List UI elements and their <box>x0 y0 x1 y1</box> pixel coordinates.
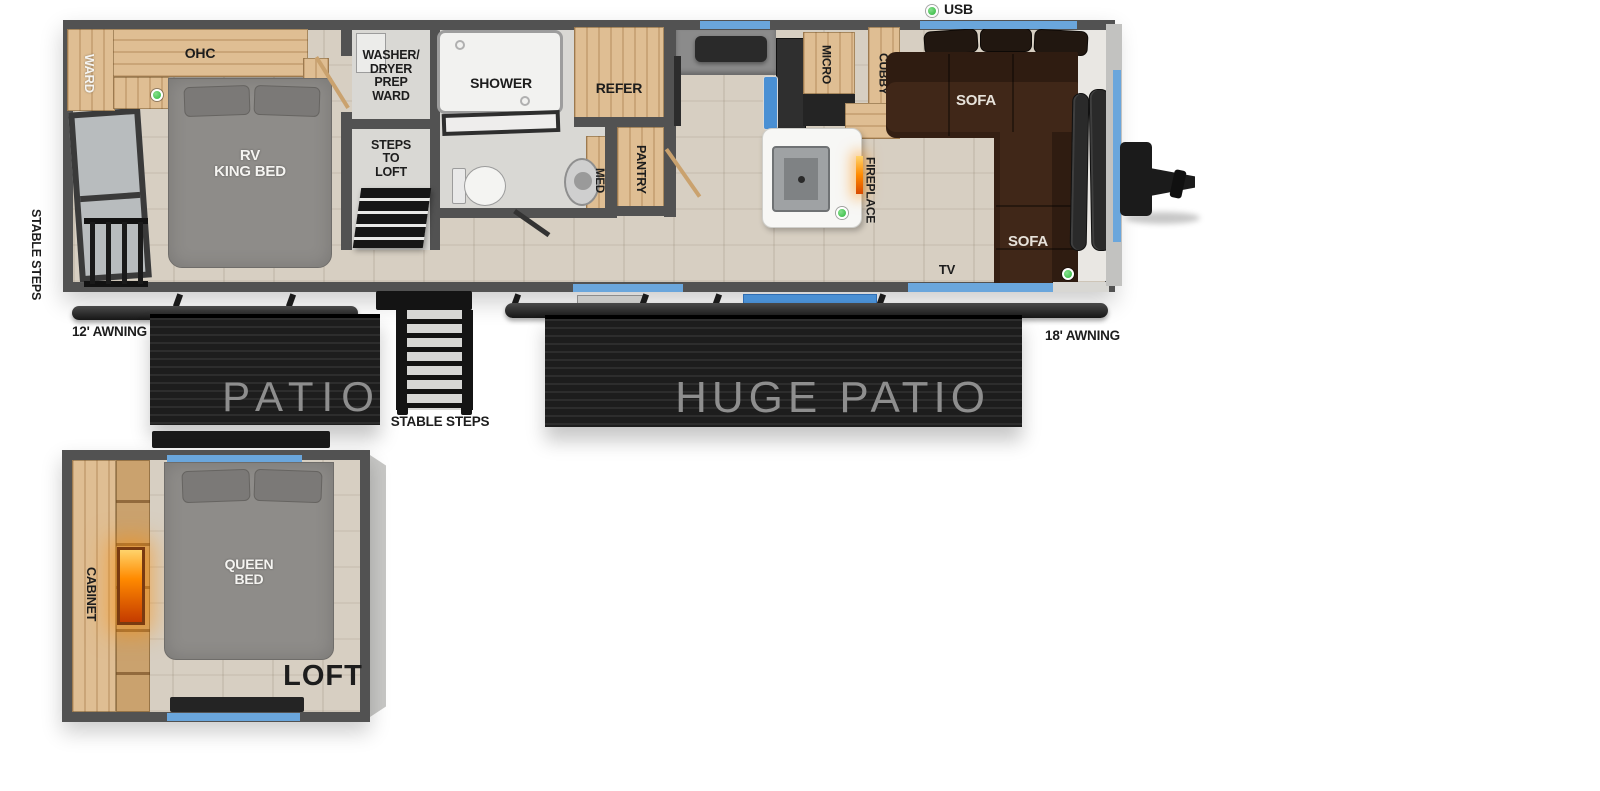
hitch-box <box>1120 142 1152 216</box>
loft-cabinet-label: CABINET <box>80 546 100 642</box>
usb-port-bedroom <box>151 89 163 101</box>
queen-bed-label: QUEEN BED <box>164 550 334 594</box>
loft-staircase-interior <box>353 188 431 248</box>
usb-port-entry <box>1062 268 1074 280</box>
wall <box>574 117 664 127</box>
king-bed-pillow <box>253 85 320 117</box>
rear-door-rail <box>80 192 140 202</box>
loft-entry-step-bottom <box>170 697 304 712</box>
usb-port-kitchen <box>836 207 848 219</box>
wall <box>605 206 676 216</box>
railing-baluster <box>138 222 143 284</box>
stable-steps-label: STABLE STEPS <box>385 414 495 430</box>
railing-baluster <box>90 222 95 284</box>
railing-baluster <box>106 222 111 284</box>
rv-floorplan-canvas: USB WARD OHC RV KING BED WASHER/ DRYER P… <box>0 0 1600 791</box>
shower-label: SHOWER <box>445 74 557 94</box>
microwave-label: MICRO <box>816 38 836 90</box>
loft-fireplace <box>117 547 145 625</box>
fireplace-label: FIREPLACE <box>860 150 880 230</box>
king-bed-pillow <box>183 85 250 117</box>
refrigerator-label: REFER <box>574 80 664 98</box>
wall <box>605 117 617 216</box>
usb-legend-dot <box>926 5 938 17</box>
toilet-bowl <box>464 166 506 206</box>
wall <box>341 119 431 129</box>
sofa-seam <box>1012 54 1014 136</box>
usb-legend-label: USB <box>944 2 988 18</box>
tv-label: TV <box>933 262 961 278</box>
kitchen-counter-column <box>776 38 806 134</box>
rear-railing <box>84 218 148 288</box>
range-hood <box>695 36 767 62</box>
railing-baluster <box>122 222 127 284</box>
awning-18-label: 18' AWNING <box>1025 328 1120 344</box>
huge-patio-label: HUGE PATIO <box>650 374 1015 422</box>
queen-bed-pillow <box>181 469 250 503</box>
kitchen-divider <box>674 56 681 126</box>
overhead-cabinet-label: OHC <box>170 45 230 63</box>
wardrobe-label: WARD <box>78 42 100 104</box>
wall <box>440 208 617 218</box>
tv-window-bottom <box>908 283 1053 292</box>
entry-step-cushion <box>1070 93 1090 251</box>
kitchen-faucet <box>798 176 805 183</box>
loft-top-platform <box>152 431 330 448</box>
shower-glass-door <box>442 110 561 136</box>
sofa-front-section <box>994 132 1078 287</box>
window-top <box>700 21 770 29</box>
patio-label: PATIO <box>192 374 412 420</box>
rear-stable-steps-label: STABLE STEPS <box>25 206 45 304</box>
sofa-back-pillow <box>980 28 1032 52</box>
stable-steps-platform <box>376 291 472 310</box>
sofa-seam <box>996 205 1076 207</box>
steps-to-loft-label: STEPS TO LOFT <box>350 134 432 184</box>
window-bottom <box>573 284 683 292</box>
stable-steps-rail <box>396 310 407 410</box>
sofa-front-label: SOFA <box>998 233 1058 251</box>
king-bed-label: RV KING BED <box>168 142 332 186</box>
refrigerator <box>574 27 664 118</box>
sofa-top-label: SOFA <box>946 92 1006 110</box>
queen-bed-pillow <box>253 469 322 503</box>
stable-steps-treads <box>407 310 462 410</box>
shower-drain <box>520 96 530 106</box>
pantry-label: PANTRY <box>630 136 650 202</box>
loft-side-shading <box>370 455 386 717</box>
window-top <box>920 21 1077 29</box>
loft-window-bottom <box>167 713 300 721</box>
stable-steps-rail <box>462 310 473 410</box>
loft-title: LOFT <box>280 660 366 694</box>
range-oven <box>763 76 778 130</box>
washer-dryer-label: WASHER/ DRYER PREP WARD <box>350 34 432 118</box>
shower-drain <box>455 40 465 50</box>
entry-door-opening <box>1053 282 1109 292</box>
